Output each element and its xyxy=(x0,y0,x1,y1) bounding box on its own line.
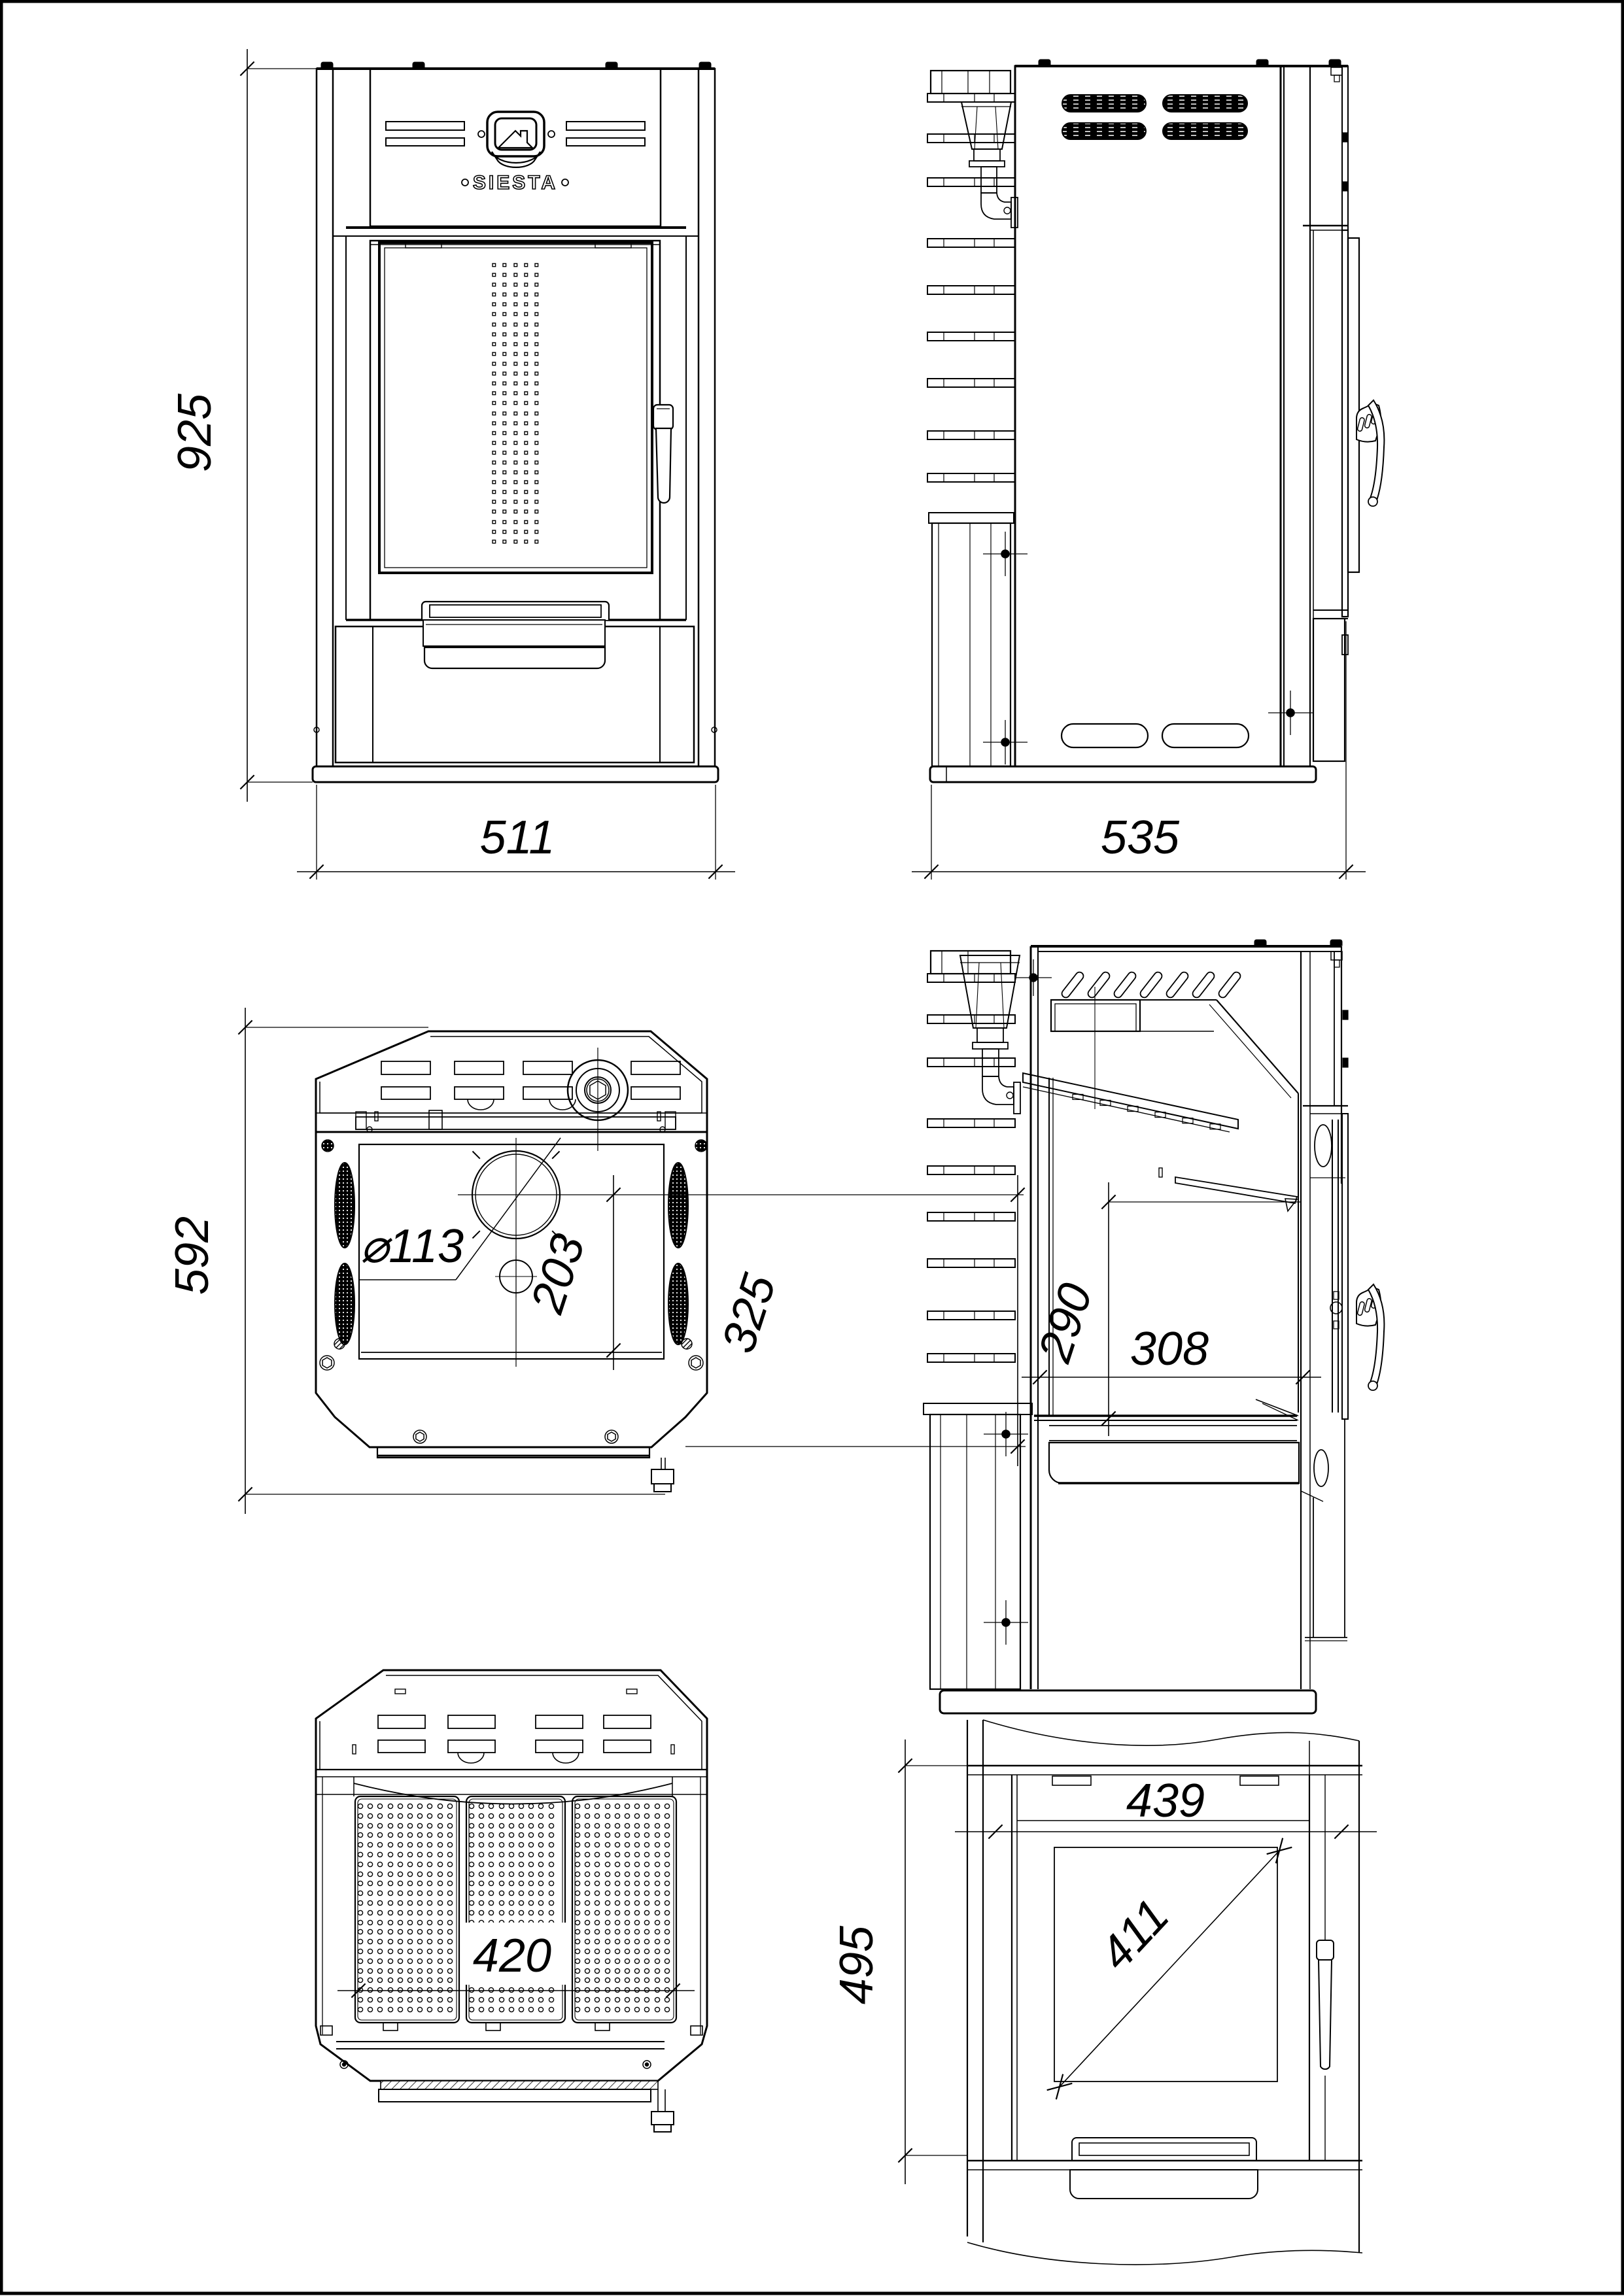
svg-text:925: 925 xyxy=(169,393,221,472)
svg-text:439: 439 xyxy=(1126,1775,1205,1827)
svg-text:SIESTA: SIESTA xyxy=(473,172,558,194)
svg-text:511: 511 xyxy=(480,812,555,864)
svg-text:495: 495 xyxy=(831,1925,883,2004)
svg-text:420: 420 xyxy=(473,1930,551,1982)
svg-text:535: 535 xyxy=(1101,812,1180,864)
svg-text:⌀113: ⌀113 xyxy=(360,1220,464,1273)
svg-text:592: 592 xyxy=(166,1216,218,1295)
svg-text:308: 308 xyxy=(1130,1323,1209,1375)
